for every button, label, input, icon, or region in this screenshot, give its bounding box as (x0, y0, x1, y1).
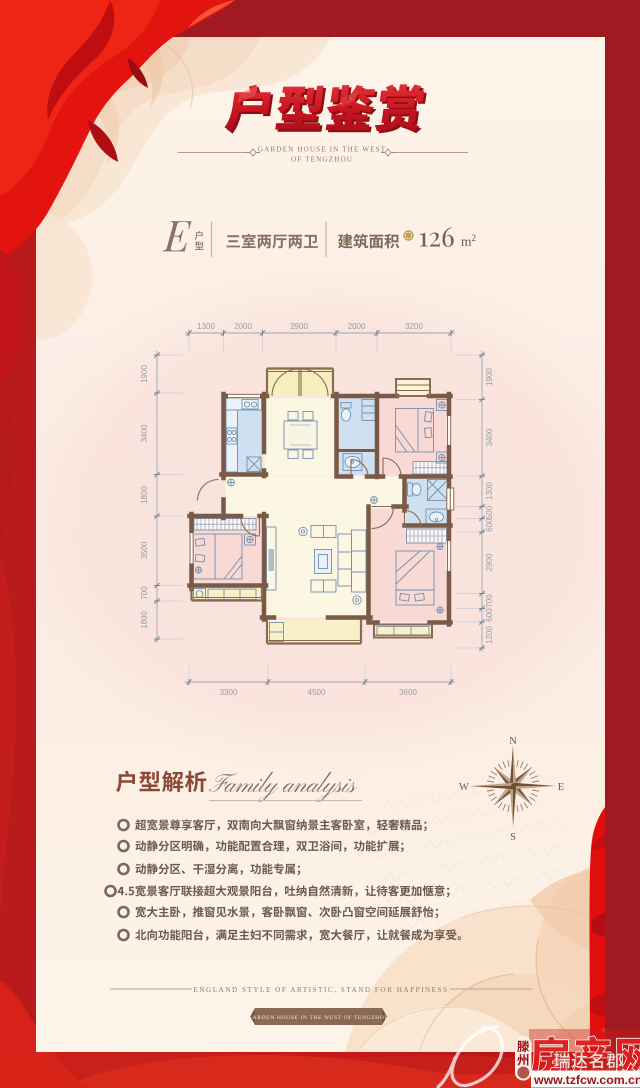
svg-text:1900: 1900 (485, 368, 494, 386)
svg-text:1800: 1800 (140, 611, 149, 629)
svg-text:3200: 3200 (405, 322, 423, 331)
svg-text:GARDEN HOUSE IN THE WEST: GARDEN HOUSE IN THE WEST (258, 146, 386, 154)
svg-text:1300: 1300 (485, 482, 494, 500)
svg-text:E: E (558, 782, 564, 793)
svg-text:3400: 3400 (485, 428, 494, 446)
svg-text:700: 700 (485, 594, 494, 608)
svg-text:2000: 2000 (234, 322, 252, 331)
svg-text:2900: 2900 (290, 322, 308, 331)
svg-text:1200: 1200 (485, 626, 494, 644)
svg-text:4500: 4500 (308, 688, 326, 697)
svg-text:N: N (509, 736, 517, 747)
svg-text:1800: 1800 (140, 486, 149, 504)
svg-text:3300: 3300 (220, 688, 238, 697)
svg-text:500: 500 (485, 505, 494, 519)
svg-text:2900: 2900 (485, 553, 494, 571)
svg-text:www.tzfcw.com.cn: www.tzfcw.com.cn (533, 1073, 640, 1087)
svg-text:GARDEN HOUSE IN THE WEST OF TE: GARDEN HOUSE IN THE WEST OF TENGZHOU (248, 1015, 389, 1021)
svg-text:W: W (459, 782, 469, 793)
svg-text:2000: 2000 (348, 322, 366, 331)
svg-text:OF TENGZHOU: OF TENGZHOU (291, 156, 353, 164)
svg-text:600: 600 (485, 608, 494, 622)
svg-text:3500: 3500 (140, 541, 149, 559)
svg-text:3600: 3600 (399, 688, 417, 697)
svg-text:S: S (510, 832, 516, 843)
svg-text:ENGLAND STYLE OF ARTISTIC,: ENGLAND STYLE OF ARTISTIC, STAND FOR HAP… (193, 986, 448, 994)
svg-text:3400: 3400 (140, 424, 149, 442)
svg-text:600: 600 (485, 518, 494, 532)
svg-text:700: 700 (140, 586, 149, 600)
svg-text:1900: 1900 (140, 365, 149, 383)
svg-text:1300: 1300 (197, 322, 215, 331)
